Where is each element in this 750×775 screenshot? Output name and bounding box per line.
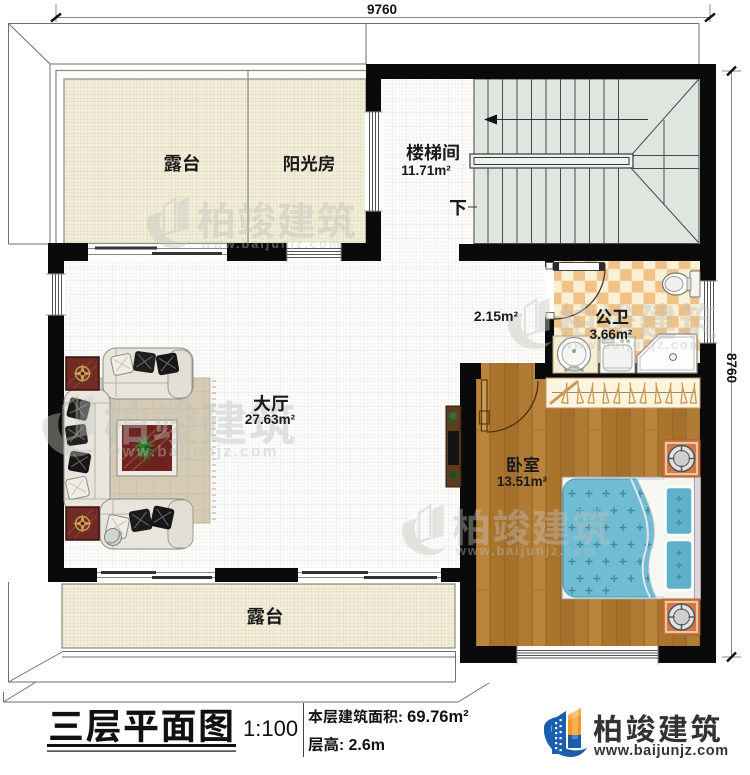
- svg-text:三层平面图: 三层平面图: [48, 698, 236, 750]
- svg-text:露台: 露台: [246, 603, 283, 629]
- svg-text:本层建筑面积: 69.76m²: 本层建筑面积: 69.76m²: [308, 706, 469, 727]
- svg-text:阳光房: 阳光房: [283, 151, 336, 176]
- svg-text:卧室: 卧室: [506, 451, 540, 476]
- svg-text:露台: 露台: [163, 150, 200, 176]
- svg-text:2.15m²: 2.15m²: [474, 308, 519, 324]
- svg-text:1:100: 1:100: [243, 716, 298, 741]
- svg-text:www.baijunjz.com: www.baijunjz.com: [593, 743, 729, 759]
- svg-text:楼梯间: 楼梯间: [406, 139, 460, 165]
- svg-text:公卫: 公卫: [595, 303, 629, 328]
- svg-text:3.66m²: 3.66m²: [590, 327, 633, 342]
- svg-text:9760: 9760: [367, 2, 397, 17]
- svg-text:27.63m²: 27.63m²: [245, 412, 296, 427]
- svg-text:11.71m²: 11.71m²: [401, 163, 451, 178]
- svg-text:下: 下: [449, 194, 467, 220]
- svg-text:8760: 8760: [724, 353, 739, 383]
- svg-text:层高: 2.6m: 层高: 2.6m: [308, 733, 385, 755]
- svg-text:13.51m²: 13.51m²: [497, 474, 548, 489]
